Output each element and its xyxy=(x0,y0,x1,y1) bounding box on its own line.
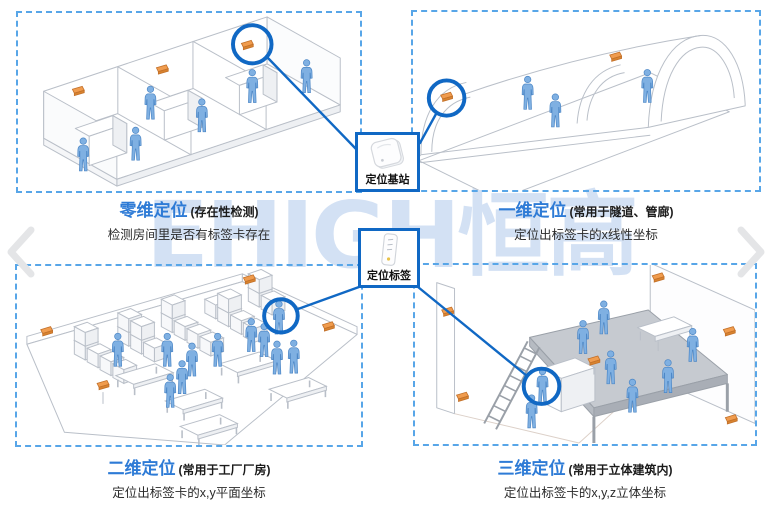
tunnel-structure xyxy=(419,35,745,190)
rooms-structure xyxy=(44,17,341,186)
qualifier-zero-dim: (存在性检测) xyxy=(191,205,259,219)
tag-card: 定位标签 xyxy=(358,228,420,288)
description-zero-dim: 检测房间里是否有标签卡存在 xyxy=(16,228,362,242)
building-scene xyxy=(415,265,755,444)
tag-label: 定位标签 xyxy=(361,267,417,283)
quadrant-zero-dim xyxy=(16,11,362,193)
chevron-left-icon[interactable] xyxy=(5,226,39,278)
qualifier-one-dim: (常用于隧道、管廊) xyxy=(570,205,674,219)
caption-zero-dim: 零维定位(存在性检测) 检测房间里是否有标签卡存在 xyxy=(16,201,362,242)
title-two-dim: 二维定位 xyxy=(108,459,176,478)
caption-one-dim: 一维定位(常用于隧道、管廊) 定位出标签卡的x线性坐标 xyxy=(411,201,761,242)
qualifier-three-dim: (常用于立体建筑内) xyxy=(569,463,673,477)
building-structure xyxy=(437,265,755,443)
caption-three-dim: 三维定位(常用于立体建筑内) 定位出标签卡的x,y,z立体坐标 xyxy=(413,459,757,500)
rooms-scene xyxy=(18,13,360,191)
tunnel-scene xyxy=(413,12,759,190)
description-three-dim: 定位出标签卡的x,y,z立体坐标 xyxy=(413,486,757,500)
title-zero-dim: 零维定位 xyxy=(120,201,188,220)
chevron-right-icon[interactable] xyxy=(733,226,767,278)
positioning-types-diagram: EHIGH恒高 xyxy=(0,0,772,514)
factory-scene xyxy=(17,266,361,445)
base-station-card: 定位基站 xyxy=(355,132,420,192)
description-two-dim: 定位出标签卡的x,y平面坐标 xyxy=(15,486,363,500)
base-station-label: 定位基站 xyxy=(358,171,417,187)
quadrant-three-dim xyxy=(413,263,757,446)
quadrant-one-dim xyxy=(411,10,761,192)
description-one-dim: 定位出标签卡的x线性坐标 xyxy=(411,228,761,242)
title-three-dim: 三维定位 xyxy=(498,459,566,478)
qualifier-two-dim: (常用于工厂厂房) xyxy=(179,463,271,477)
tag-device-icon xyxy=(361,231,417,269)
caption-two-dim: 二维定位(常用于工厂厂房) 定位出标签卡的x,y平面坐标 xyxy=(15,459,363,500)
base-station-device-icon xyxy=(358,135,417,173)
quadrant-two-dim xyxy=(15,264,363,447)
title-one-dim: 一维定位 xyxy=(499,201,567,220)
